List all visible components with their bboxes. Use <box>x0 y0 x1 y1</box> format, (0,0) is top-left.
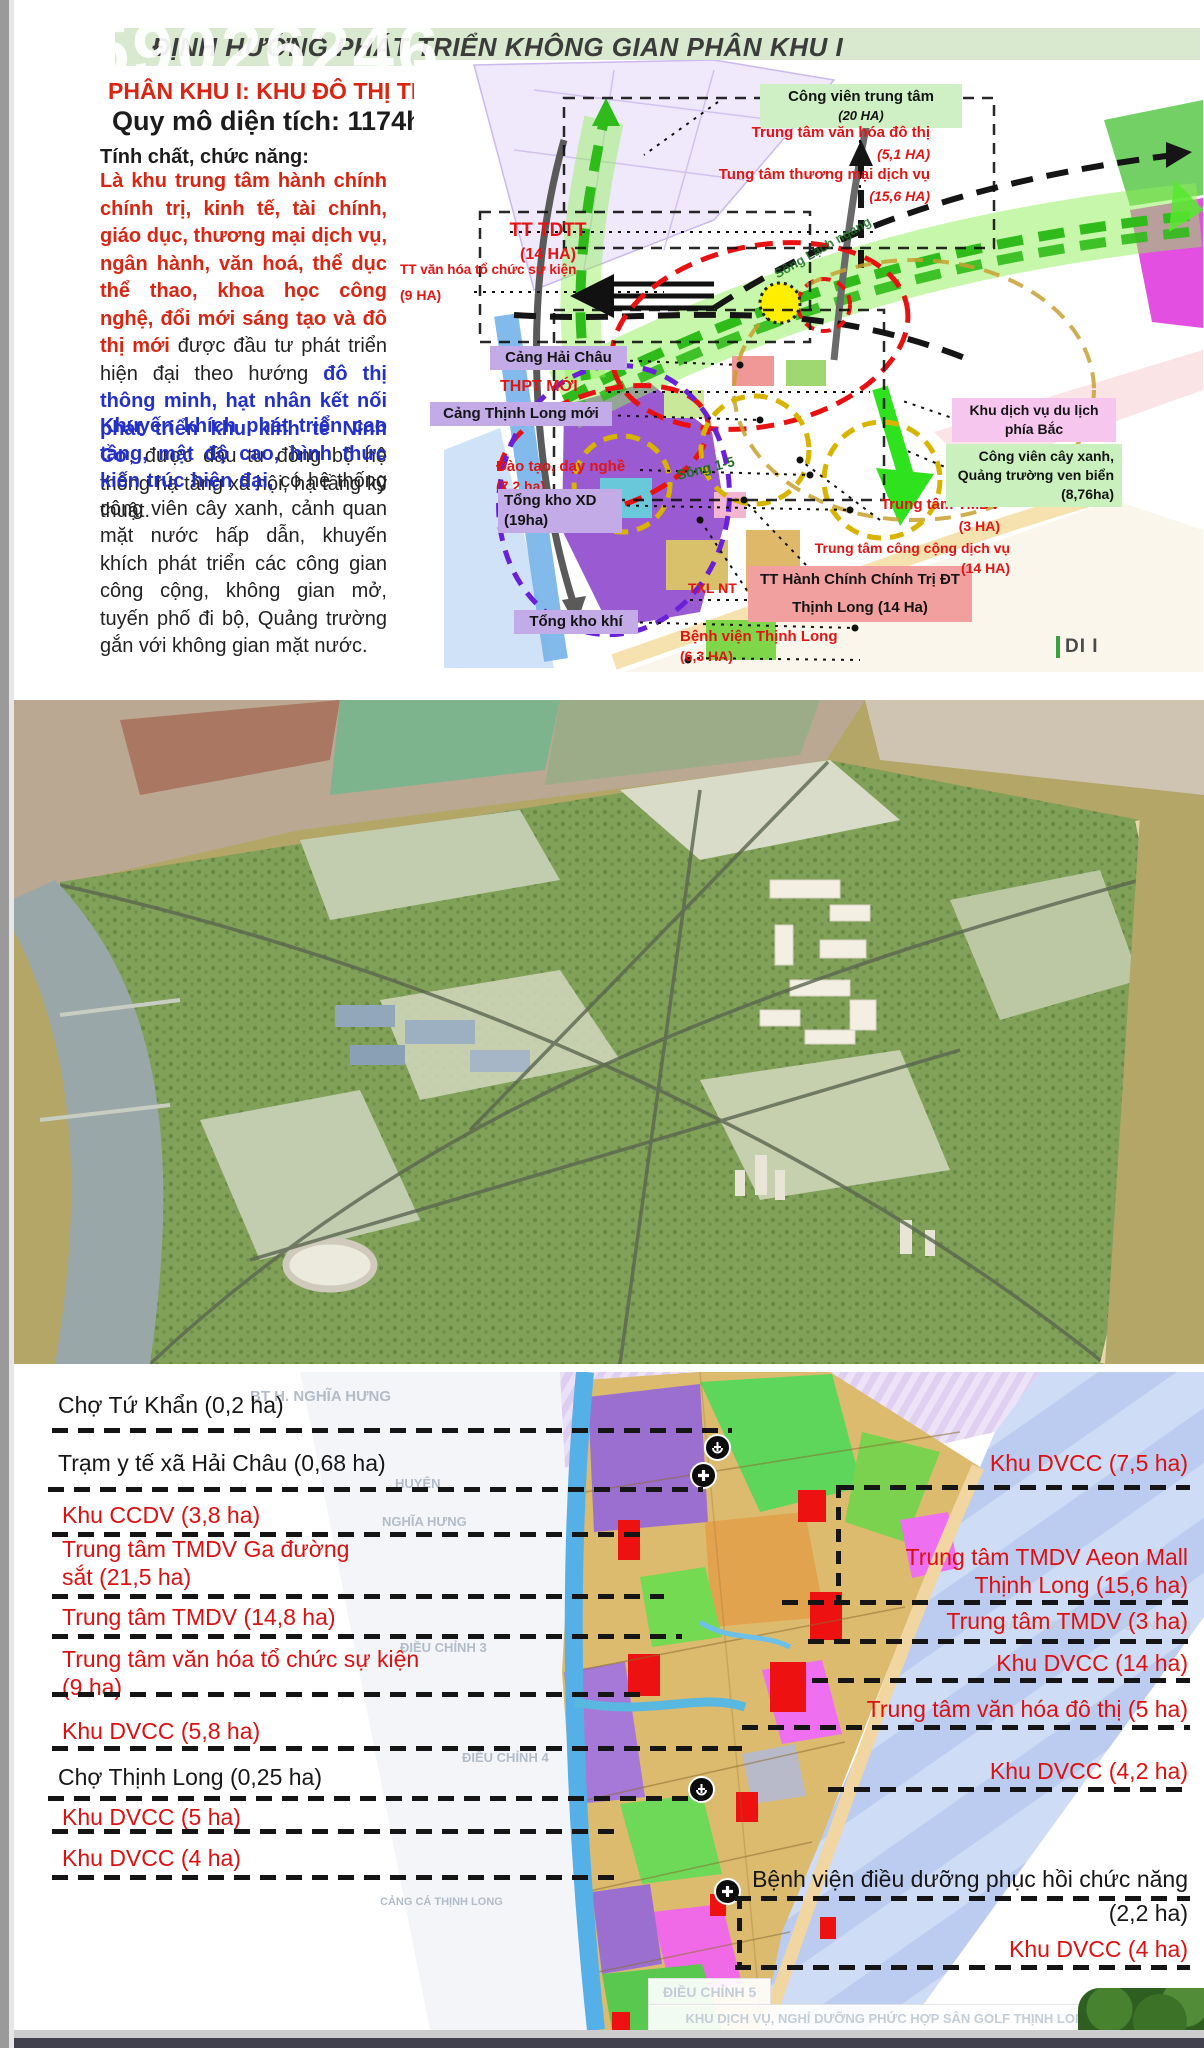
label-khu-ccdv: Khu CCDV (3,8 ha) <box>62 1502 260 1529</box>
label-tt-cong-cong-dich-vu-area: (14 HA) <box>790 560 1010 576</box>
label-benh-vien-thinh-long-area: (6,3 HA) <box>680 648 733 664</box>
label-tt-van-hoa-do-thi-bottom: Trung tâm văn hóa đô thị (5 ha) <box>867 1696 1188 1723</box>
page-left-edge <box>0 0 9 2048</box>
leader-line <box>828 1787 1190 1792</box>
label-khu-dvcc-7-5: Khu DVCC (7,5 ha) <box>990 1450 1188 1477</box>
label-benh-vien-thinh-long: Bệnh viện Thịnh Long <box>680 628 838 645</box>
label-cang-hai-chau: Cảng Hải Châu <box>490 346 627 370</box>
label-tmdv-aeon-mall: Trung tâm TMDV Aeon Mall <box>906 1544 1189 1571</box>
planning-document-page: ĐỊNH HƯỚNG PHÁT TRIỂN KHÔNG GIAN PHÂN KH… <box>0 0 1204 2048</box>
faint-label: ĐIỀU CHỈNH 4 <box>462 1750 549 1765</box>
label-cong-vien-cay-xanh-ven-bien: Công viên cây xanh, Quảng trường ven biể… <box>946 444 1122 507</box>
label-cho-thinh-long: Chợ Thịnh Long (0,25 ha) <box>58 1764 322 1791</box>
label-khu-dvcc-4-right: Khu DVCC (4 ha) <box>1009 1936 1188 1963</box>
leader-line <box>735 1965 1190 1970</box>
label-khu-dvcc-5: Khu DVCC (5 ha) <box>62 1804 241 1831</box>
label-tong-kho-xd: Tổng kho XD (19ha) <box>498 489 622 533</box>
section-heading: Tính chất, chức năng: <box>100 146 309 169</box>
leader-line <box>52 1634 682 1639</box>
harbor-marker-icon <box>704 1434 731 1461</box>
page-bottom-dark-bar <box>0 2038 1204 2048</box>
label-tmdv-aeon-mall-2: Thịnh Long (15,6 ha) <box>974 1572 1188 1599</box>
label-dao-tao-day-nghe: Đào tạo, dạy nghề <box>496 458 625 475</box>
leader-line <box>812 1678 1190 1683</box>
leader-line <box>52 1829 622 1834</box>
label-tong-kho-khi: Tổng kho khí <box>514 610 638 634</box>
label-txl-nt: TXL NT <box>688 580 737 596</box>
slide-title: ĐỊNH HƯỚNG PHÁT TRIỂN KHÔNG GIAN PHÂN KH… <box>152 32 843 63</box>
label-tt-thuong-mai-dich-vu-area: (15,6 HA) <box>790 188 930 204</box>
label-tt-cong-cong-dich-vu: Trung tâm công cộng dịch vụ <box>790 540 1010 556</box>
label-khu-dvcc-14: Khu DVCC (14 ha) <box>996 1650 1188 1677</box>
leader-line <box>52 1746 742 1751</box>
label-benh-vien-dieu-duong: Bệnh viện điều dưỡng phục hồi chức năng <box>752 1866 1188 1893</box>
label-cang-thinh-long-moi: Cảng Thịnh Long mới <box>430 402 612 426</box>
label-tt-van-hoa-do-thi: Trung tâm văn hóa đô thị <box>690 124 930 141</box>
label-cho-tu-khan: Chợ Tứ Khẩn (0,2 ha) <box>58 1392 284 1419</box>
leader-line <box>52 1692 644 1697</box>
label-tt-van-hoa-su-kien-area: (9 HA) <box>400 287 441 303</box>
label-tmdv-ga-duong-sat-2: sắt (21,5 ha) <box>62 1564 191 1591</box>
label-khu-dvcc-4-left: Khu DVCC (4 ha) <box>62 1845 241 1872</box>
leader-line <box>782 1600 1190 1605</box>
label-trung-tam-tmdv-3: Trung tâm TMDV (3 ha) <box>946 1608 1188 1635</box>
label-tt-van-hoa-su-kien-bottom: Trung tâm văn hóa tổ chức sự kiện <box>62 1646 419 1673</box>
label-tmdv-ga-duong-sat: Trung tâm TMDV Ga đường <box>62 1536 349 1563</box>
label-tt-thuong-mai-dich-vu: Tung tâm thương mại dịch vụ <box>660 166 930 183</box>
page-bottom-light-bar <box>0 2030 1204 2038</box>
page-left-edge-inner <box>9 0 14 2048</box>
slide-section: ĐỊNH HƯỚNG PHÁT TRIỂN KHÔNG GIAN PHÂN KH… <box>0 0 1204 690</box>
label-tt-van-hoa-do-thi-area: (5,1 HA) <box>790 146 930 162</box>
label-benh-vien-dieu-duong-area: (2,2 ha) <box>1109 1900 1188 1927</box>
leader-line <box>808 1639 1190 1644</box>
medical-marker-icon <box>690 1462 717 1489</box>
slide-area-size: Quy mô diện tích: 1174ha <box>112 106 438 137</box>
faint-label: NGHĨA HƯNG <box>382 1514 467 1529</box>
label-khu-dvcc-4-2: Khu DVCC (4,2 ha) <box>990 1758 1188 1785</box>
label-thpt-moi: THPT MỚI <box>500 378 578 396</box>
leader-line-vertical <box>836 1485 841 1603</box>
label-tt-tdtt: TT TDTT <box>488 220 608 242</box>
bottom-map-section: BT H. NGHĨA HƯNG HUYỆN NGHĨA HƯNG ĐIỀU C… <box>0 1368 1204 2030</box>
label-trung-tam-tmdv-14-8: Trung tâm TMDV (14,8 ha) <box>62 1604 336 1631</box>
faint-label: ĐIỀU CHỈNH 5 <box>648 1978 771 2006</box>
leader-line <box>52 1594 664 1599</box>
label-tram-y-te-hai-chau: Trạm y tế xã Hải Châu (0,68 ha) <box>58 1450 386 1477</box>
leader-line <box>52 1875 624 1880</box>
label-tt-van-hoa-su-kien: TT văn hóa tổ chức sự kiện <box>400 262 576 277</box>
label-trung-tam-tmdv-3ha-area: (3 HA) <box>860 518 1000 534</box>
leader-line <box>48 1487 703 1492</box>
label-khu-dich-vu-du-lich: Khu dịch vụ du lịch phía Bắc <box>952 398 1116 442</box>
label-khu-dvcc-5-8: Khu DVCC (5,8 ha) <box>62 1718 260 1745</box>
label-cong-vien-trung-tam: Công viên trung tâm (20 HA) <box>760 84 962 128</box>
leader-line <box>742 1725 1190 1730</box>
aerial-render <box>0 700 1204 1364</box>
description-paragraph-2: Khuyến khích phát triển cao tầng, mật độ… <box>100 413 387 661</box>
leader-line <box>838 1485 1190 1490</box>
leader-line <box>52 1428 732 1433</box>
leader-line <box>48 1796 703 1801</box>
dii-logo: DI I <box>1056 636 1099 658</box>
faint-label: CẢNG CÁ THỊNH LONG <box>380 1896 503 1908</box>
leader-line-vertical <box>737 1896 742 1968</box>
